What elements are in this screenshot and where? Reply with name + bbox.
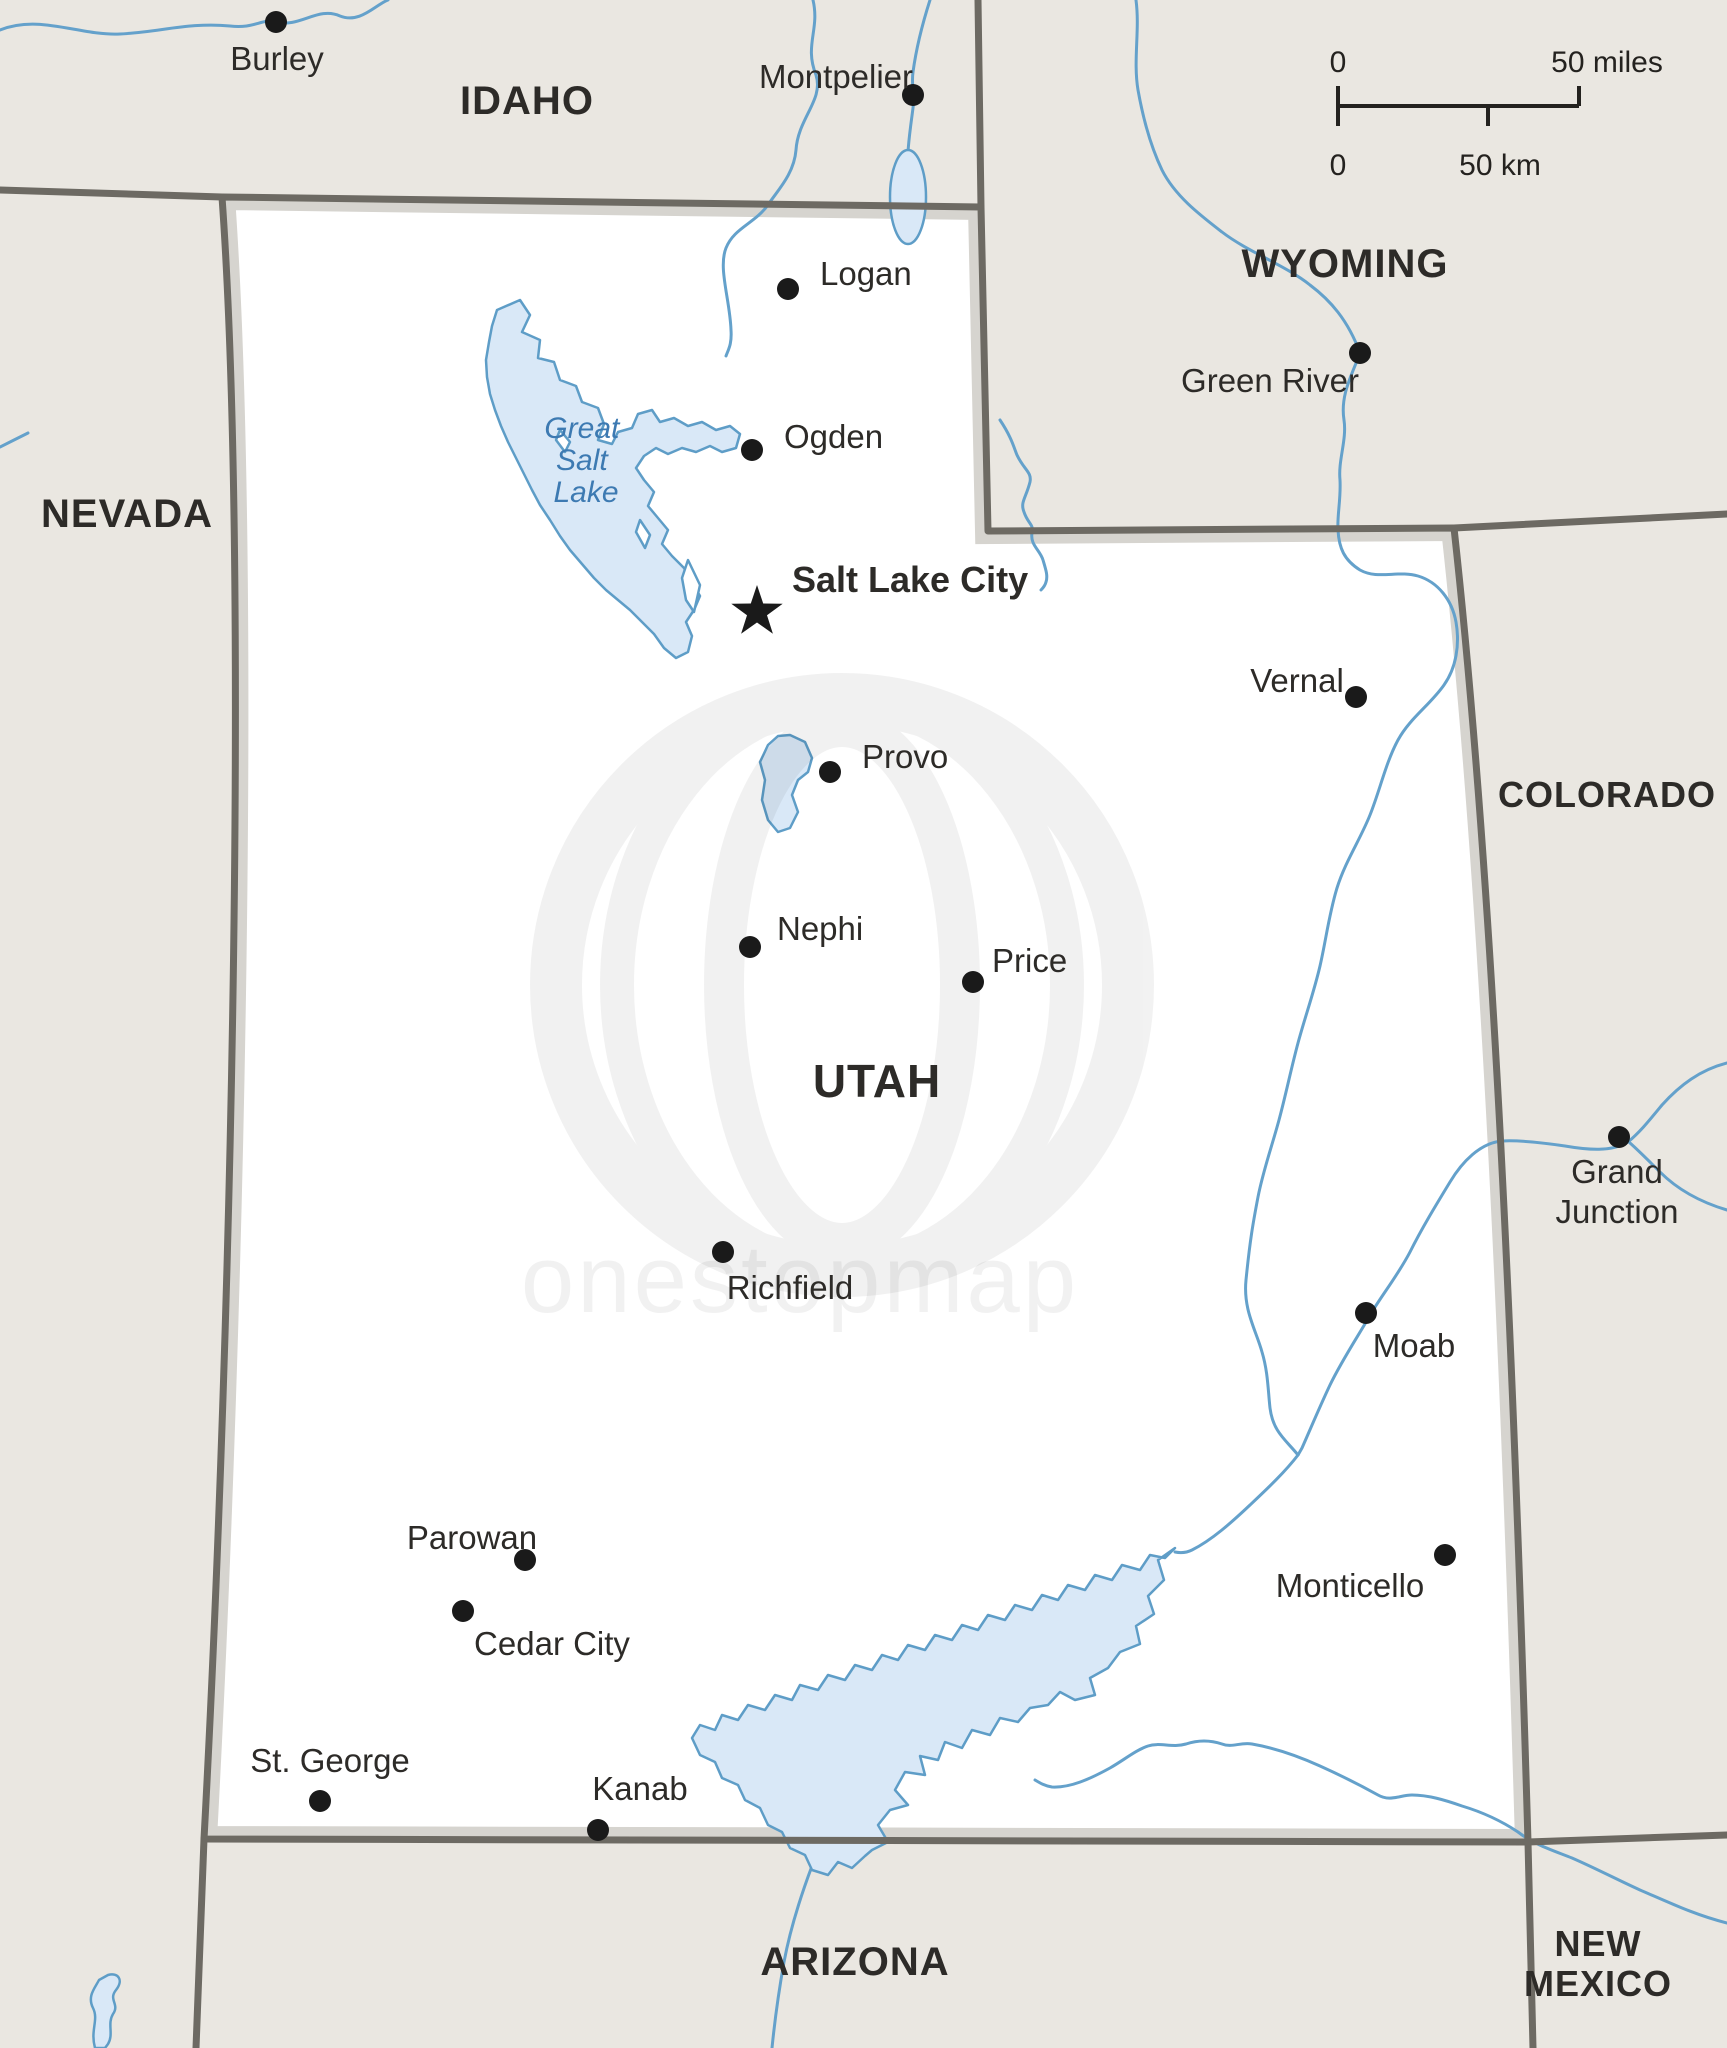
border-arizona-newmexico	[1528, 1842, 1533, 2048]
city-marker-dot-kanab	[587, 1819, 609, 1841]
city-label-moab: Moab	[1373, 1327, 1456, 1364]
great-salt-lake-label: Great Salt Lake	[544, 412, 627, 509]
state-label-nevada: NEVADA	[41, 492, 213, 536]
border-idaho-wyoming	[978, 0, 981, 207]
scale-miles-label: 50 miles	[1551, 46, 1663, 79]
city-label-monticello: Monticello	[1276, 1567, 1425, 1604]
city-label-cedar-city: Cedar City	[474, 1625, 630, 1662]
city-label-kanab: Kanab	[592, 1770, 687, 1807]
scale-miles-zero: 0	[1330, 46, 1347, 79]
city-label-price: Price	[992, 942, 1067, 979]
city-label-burley: Burley	[230, 40, 324, 77]
city-label-logan: Logan	[820, 255, 912, 292]
bear-lake-shape	[890, 150, 926, 244]
city-label-salt-lake-city: Salt Lake City	[792, 559, 1028, 600]
city-label-parowan: Parowan	[407, 1519, 537, 1556]
city-label-vernal: Vernal	[1250, 662, 1344, 699]
city-marker-dot-nephi	[739, 936, 761, 958]
city-marker-dot-green-river	[1349, 342, 1371, 364]
city-marker-dot-logan	[777, 278, 799, 300]
city-label-provo: Provo	[862, 738, 948, 775]
scale-km-label: 50 km	[1459, 149, 1541, 182]
city-label-nephi: Nephi	[777, 910, 863, 947]
city-marker-dot-grand-junction	[1608, 1126, 1630, 1148]
city-label-montpelier: Montpelier	[759, 58, 913, 95]
state-label-utah: UTAH	[813, 1055, 941, 1107]
city-marker-dot-cedar-city	[452, 1600, 474, 1622]
city-marker-dot-vernal	[1345, 686, 1367, 708]
city-marker-dot-provo	[819, 761, 841, 783]
city-label-richfield: Richfield	[727, 1269, 854, 1306]
map-root: onestopmap Great Salt Lake IDAHONEVADAWY…	[0, 0, 1727, 2048]
state-label-idaho: IDAHO	[460, 79, 594, 123]
city-marker-dot-price	[962, 971, 984, 993]
city-label-green-river: Green River	[1181, 362, 1359, 399]
state-label-arizona: ARIZONA	[760, 1940, 949, 1984]
city-marker-dot-st-george	[309, 1790, 331, 1812]
state-label-wyoming: WYOMING	[1242, 242, 1449, 286]
city-marker-dot-moab	[1355, 1302, 1377, 1324]
city-marker-dot-richfield	[712, 1241, 734, 1263]
city-marker-dot-monticello	[1434, 1544, 1456, 1566]
city-label-ogden: Ogden	[784, 418, 883, 455]
state-label-colorado: COLORADO	[1498, 774, 1716, 815]
scale-km-zero: 0	[1330, 149, 1347, 182]
city-label-st-george: St. George	[250, 1742, 410, 1779]
city-marker-dot-ogden	[741, 439, 763, 461]
city-marker-dot-burley	[265, 11, 287, 33]
